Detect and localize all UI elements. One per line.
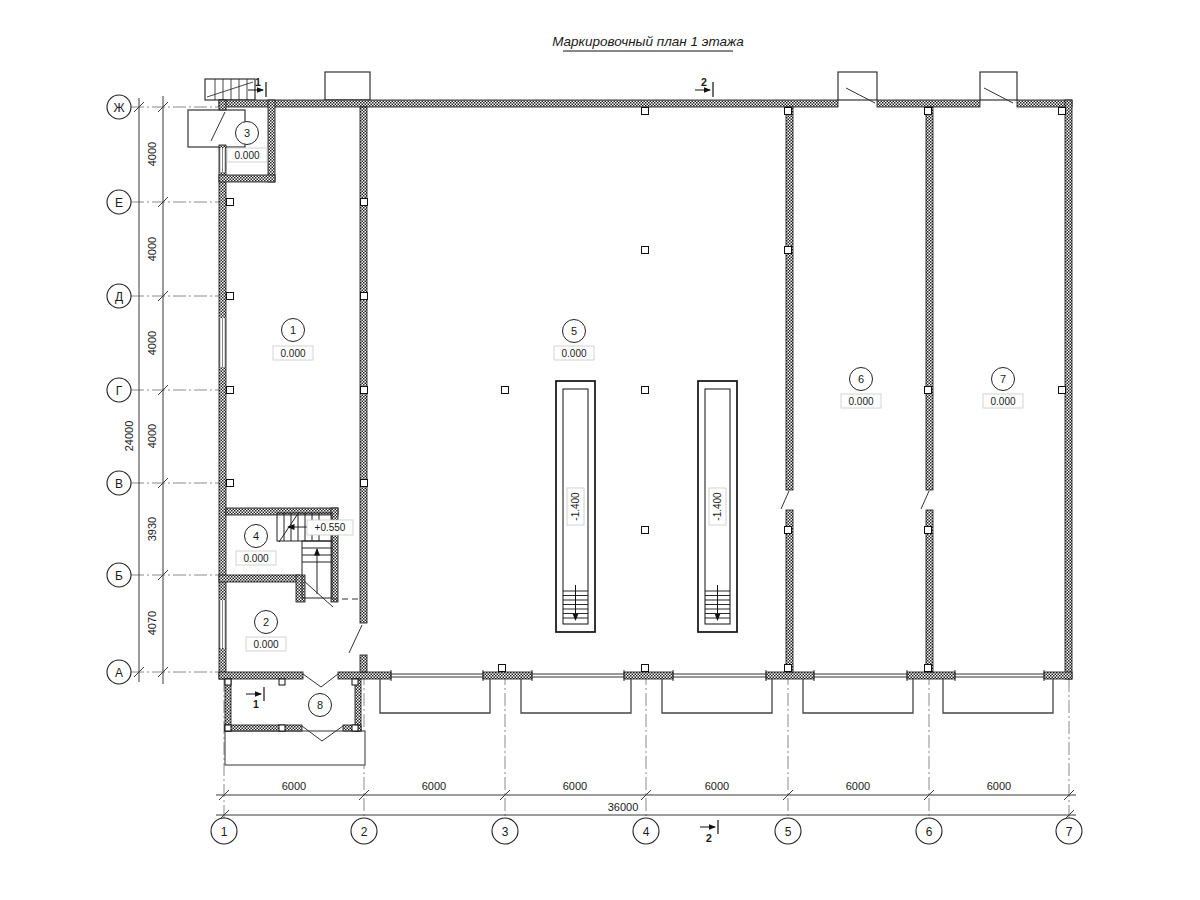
room-number: 1 [290, 324, 296, 336]
dim-left-4: 4000 [146, 424, 158, 448]
axis-col-label: 2 [361, 825, 368, 839]
room-number: 7 [1000, 373, 1006, 385]
room-label-1: 1 0.000 [273, 319, 313, 361]
walls [219, 100, 1072, 731]
axis-col-label: 7 [1066, 825, 1073, 839]
inspection-pit-2: -1.400 [698, 381, 737, 632]
roof-canopy [325, 72, 370, 100]
room-label-2: 2 0.000 [246, 611, 286, 652]
room-elevation: 0.000 [253, 639, 278, 650]
room-number: 4 [253, 530, 259, 542]
room-elevation: 0.000 [280, 348, 305, 359]
col-axis-labels: 1 2 3 4 5 6 7 [221, 825, 1073, 839]
room-elevation: 0.000 [990, 396, 1015, 407]
section-markers: 1 2 1 2 [246, 76, 718, 844]
door-room2 [349, 625, 362, 653]
stair-elevation-label: +0.550 [307, 520, 353, 535]
axis-row-label: А [115, 666, 123, 680]
axis-row-label: Е [115, 196, 123, 210]
pit-elevation: -1.400 [570, 492, 581, 521]
room-elevation: 0.000 [848, 396, 873, 407]
inspection-pit-1: -1.400 [556, 381, 595, 632]
dim-left-6: 4070 [146, 611, 158, 635]
section-number: 2 [701, 76, 707, 88]
room-number: 3 [244, 127, 250, 139]
stair-elevation: +0.550 [315, 522, 346, 533]
dim-left-1: 4000 [146, 142, 158, 166]
door-wall6 [921, 491, 929, 509]
ramp [803, 679, 913, 713]
room-label-4: 4 0.000 [236, 525, 276, 566]
room-elevation: 0.000 [561, 348, 586, 359]
room-elevation: 0.000 [234, 150, 259, 161]
dim-left-2: 4000 [146, 237, 158, 261]
room-label-7: 7 0.000 [983, 368, 1023, 409]
axis-row-label: В [115, 477, 123, 491]
room-label-6: 6 0.000 [841, 368, 881, 409]
dim-bottom-2: 6000 [422, 780, 446, 792]
axis-row-label: Д [115, 290, 123, 304]
loading-ramps [380, 679, 1053, 713]
ramp [662, 679, 772, 713]
window [219, 600, 226, 648]
pit-elevation: -1.400 [712, 492, 723, 521]
dim-bottom-6: 6000 [987, 780, 1011, 792]
room-labels: 1 0.000 2 0.000 3 0.000 4 0.000 5 0.000 [227, 122, 1023, 717]
axis-row-label: Б [115, 569, 123, 583]
exterior-structures [188, 72, 1017, 765]
door-room4 [304, 581, 333, 607]
dimension-lines [134, 96, 1076, 820]
section-marker-2-bottom: 2 [700, 820, 718, 844]
room-number: 2 [263, 616, 269, 628]
dim-left-3: 4000 [146, 331, 158, 355]
ramp [521, 679, 631, 713]
section-number: 1 [255, 76, 261, 88]
room-number: 8 [317, 699, 323, 711]
axis-row-label: Ж [113, 101, 124, 115]
plan-title-block: Маркировочный план 1 этажа [552, 34, 744, 51]
vestibule-1 [838, 72, 877, 100]
axis-col-label: 5 [785, 825, 792, 839]
dim-left-total: 24000 [123, 421, 135, 452]
room-number: 6 [858, 373, 864, 385]
door-wall5 [781, 491, 789, 509]
section-number: 2 [706, 832, 712, 844]
room-label-5: 5 0.000 [554, 320, 594, 361]
floor-plan-drawing: Маркировочный план 1 этажа [0, 0, 1200, 900]
dim-bottom-5: 6000 [846, 780, 870, 792]
columns [225, 108, 1066, 732]
axis-col-label: 4 [643, 825, 650, 839]
south-porch [225, 731, 365, 765]
room-elevation: 0.000 [243, 553, 268, 564]
axis-col-label: 6 [926, 825, 933, 839]
room-label-8: 8 [309, 694, 332, 717]
axis-row-label: Г [116, 384, 123, 398]
ramp [380, 679, 490, 713]
section-marker-2-top: 2 [695, 76, 713, 97]
floor-plan-page: Маркировочный план 1 этажа [0, 0, 1200, 900]
room-number: 5 [571, 325, 577, 337]
section-number: 1 [253, 698, 259, 710]
dim-bottom-total: 36000 [608, 801, 639, 813]
axis-col-label: 1 [221, 825, 228, 839]
plan-title: Маркировочный план 1 этажа [552, 34, 744, 49]
section-marker-1-bottom: 1 [246, 687, 264, 710]
ramp [943, 679, 1053, 713]
dim-left-5: 3930 [146, 517, 158, 541]
dim-bottom-3: 6000 [563, 780, 587, 792]
dim-bottom-4: 6000 [705, 780, 729, 792]
window [219, 318, 226, 367]
dim-bottom-1: 6000 [282, 780, 306, 792]
window [219, 148, 226, 172]
axis-col-label: 3 [502, 825, 509, 839]
